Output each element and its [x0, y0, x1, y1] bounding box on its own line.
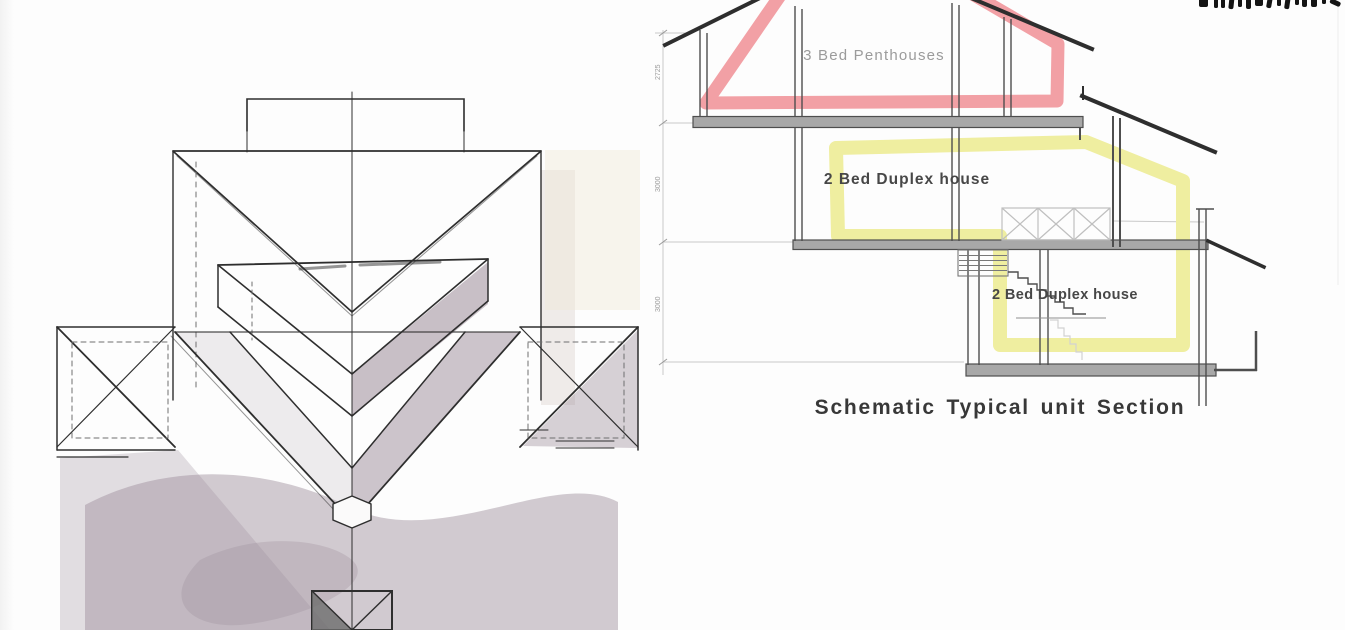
- marker-shading: [60, 150, 640, 630]
- penthouse-label: 3 Bed Penthouses: [783, 47, 965, 64]
- scanned-presentation-page: 2725 3000 3000: [0, 0, 1345, 630]
- duplex-upper-label: 2 Bed Duplex house: [810, 171, 1004, 189]
- penthouse-floor-slab: [693, 117, 1083, 128]
- schematic-section-drawing: 2725 3000 3000: [630, 0, 1345, 460]
- page-edge-fade: [0, 0, 14, 630]
- cropped-title-fragment: [1199, 0, 1341, 9]
- left-wing-block: [57, 327, 175, 457]
- section-caption: Schematic Typical unit Section: [798, 396, 1202, 420]
- mid-floor-slab: [793, 240, 1208, 250]
- duplex-lower-label: 2 Bed Duplex house: [992, 287, 1174, 304]
- dimension-top: 2725: [655, 64, 662, 80]
- dimension-values: 2725 3000 3000: [655, 64, 662, 312]
- bottom-floor-slab: [966, 364, 1216, 376]
- axonometric-roof-sketch: [0, 0, 662, 630]
- elevator-boxes: [1002, 208, 1110, 240]
- rooftop-box: [247, 99, 464, 131]
- dimension-bottom: 3000: [655, 296, 662, 312]
- dimension-middle: 3000: [655, 176, 662, 192]
